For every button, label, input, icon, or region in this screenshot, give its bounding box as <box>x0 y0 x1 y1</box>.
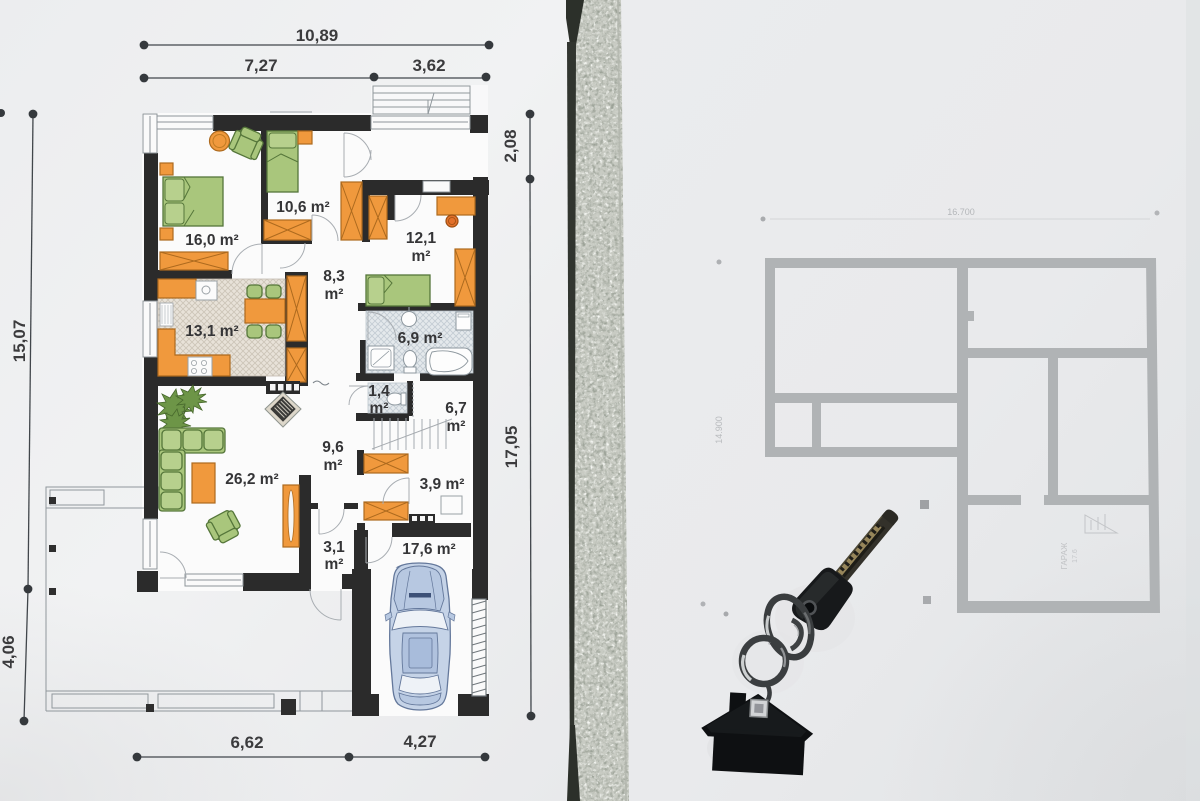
svg-text:7,27: 7,27 <box>244 56 277 75</box>
svg-text:12,1: 12,1 <box>406 230 437 247</box>
svg-text:ГАРАЖ: ГАРАЖ <box>1060 542 1069 569</box>
svg-text:1,4: 1,4 <box>368 383 390 400</box>
svg-text:26,2 m²: 26,2 m² <box>225 471 278 488</box>
svg-text:17,6 m²: 17,6 m² <box>402 541 455 558</box>
svg-text:3,1: 3,1 <box>323 539 345 556</box>
svg-text:4,06: 4,06 <box>0 635 18 668</box>
svg-text:6,9 m²: 6,9 m² <box>398 330 443 347</box>
svg-text:3,62: 3,62 <box>412 56 445 75</box>
svg-text:14.900: 14.900 <box>714 416 724 444</box>
svg-text:16.700: 16.700 <box>947 207 975 217</box>
svg-text:m²: m² <box>325 286 344 303</box>
svg-text:m²: m² <box>325 556 344 573</box>
svg-text:17.6: 17.6 <box>1072 549 1079 563</box>
svg-text:4,27: 4,27 <box>403 732 436 751</box>
svg-text:m²: m² <box>324 457 343 474</box>
svg-text:17,05: 17,05 <box>502 426 521 469</box>
svg-text:m²: m² <box>412 248 431 265</box>
svg-text:6,7: 6,7 <box>445 400 467 417</box>
svg-text:m²: m² <box>447 418 466 435</box>
svg-text:m²: m² <box>370 400 389 417</box>
svg-text:2,08: 2,08 <box>501 129 520 162</box>
svg-text:16,0 m²: 16,0 m² <box>185 232 238 249</box>
svg-text:3,9 m²: 3,9 m² <box>420 476 465 493</box>
svg-text:13,1 m²: 13,1 m² <box>185 323 238 340</box>
svg-text:6,62: 6,62 <box>230 733 263 752</box>
svg-text:9,6: 9,6 <box>322 439 344 456</box>
svg-text:15,07: 15,07 <box>10 320 29 363</box>
svg-text:10,6 m²: 10,6 m² <box>276 199 329 216</box>
svg-text:8,3: 8,3 <box>323 268 345 285</box>
svg-text:10,89: 10,89 <box>296 26 339 45</box>
